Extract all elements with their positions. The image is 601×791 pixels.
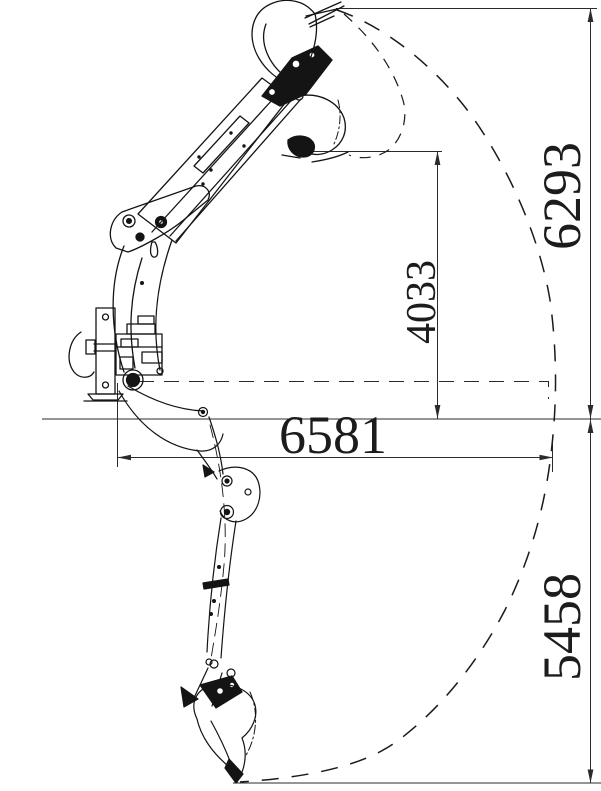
dimension-lines	[42, 9, 601, 784]
diagram-canvas: 6293 5458 4033 6581	[0, 0, 601, 791]
envelope-outer-curve	[240, 10, 556, 782]
bucket-dump-trajectory-curve	[344, 14, 405, 158]
bucket-cylinder	[170, 94, 297, 236]
label-max-height: 6293	[532, 142, 592, 250]
dimension-arrowheads	[118, 9, 594, 784]
excavator-digging-arm	[119, 386, 260, 783]
label-dump-height: 4033	[399, 260, 445, 344]
working-range-diagram: 6293 5458 4033 6581	[0, 0, 601, 791]
working-envelope	[240, 10, 556, 782]
boom-digging	[128, 386, 203, 411]
label-max-reach: 6581	[279, 405, 387, 465]
dimension-labels: 6293 5458 4033 6581	[279, 142, 592, 681]
mount-base	[69, 308, 163, 401]
label-dig-depth: 5458	[532, 573, 592, 681]
arm-plate	[194, 116, 249, 173]
pivot-height-dashed-line	[139, 382, 549, 400]
